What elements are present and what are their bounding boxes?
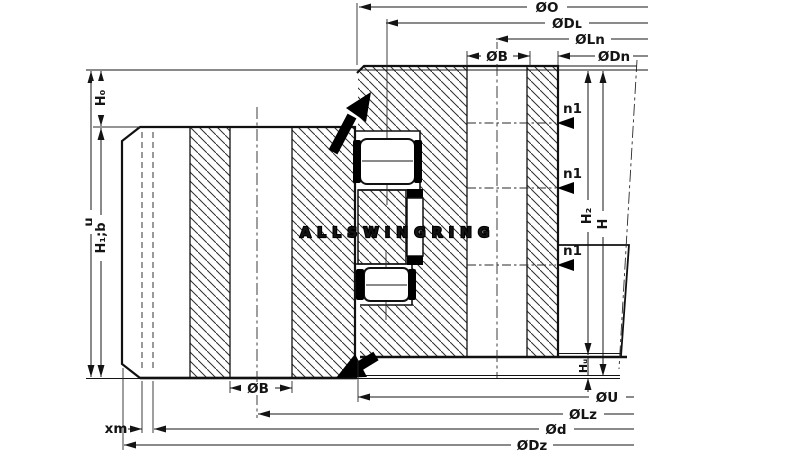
dim-label-H0: H₀ — [94, 89, 109, 106]
dim-label-H1b: H₁;b — [94, 222, 109, 253]
dim-label-H1b-group: H₁;b — [92, 215, 109, 261]
technical-drawing-page: ALLSWINGRING ØO ØDʟ ØLn ØB ØDn — [0, 0, 789, 459]
dim-label-H-group: H — [594, 211, 611, 237]
dim-label-H0-group: H₀ — [92, 81, 109, 115]
dim-label-U: ØU — [596, 390, 618, 406]
right-dimensions: H₂ H Hᵤ n1 n1 n1 — [557, 71, 611, 392]
dim-label-H2: H₂ — [580, 208, 595, 225]
n1-arrow-upper-icon — [557, 117, 574, 129]
n1-label-middle: n1 — [563, 166, 582, 182]
radial-roller-retainer-bottom — [407, 256, 423, 265]
dim-label-B-top: ØB — [486, 49, 508, 65]
dim-label-Hu: Hᵤ — [577, 359, 590, 373]
dim-label-H2-group: H₂ — [578, 200, 595, 232]
n1-arrow-lower-icon — [557, 259, 574, 271]
dim-label-H: H — [596, 219, 611, 230]
outer-ring-hatch-lower-mid — [412, 264, 467, 305]
top-dimensions: ØO ØDʟ ØLn ØB ØDn — [357, 0, 648, 66]
n1-label-upper: n1 — [563, 101, 582, 117]
inner-ring-hatch-band-2 — [292, 127, 355, 378]
lower-seal-right — [408, 269, 416, 300]
upper-seal-left — [353, 140, 361, 183]
gear-pitch-line — [619, 60, 637, 369]
n1-arrow-middle-icon — [557, 182, 574, 194]
n1-label-lower: n1 — [563, 243, 582, 259]
left-dimensions: u H₀ H₁;b — [80, 71, 140, 377]
watermark-text: ALLSWINGRING — [300, 225, 495, 241]
dim-label-Ln: ØLn — [575, 32, 605, 48]
dim-label-DL: ØDʟ — [552, 16, 582, 32]
dim-label-O: ØO — [536, 0, 559, 16]
radial-roller-retainer-top — [407, 189, 423, 198]
dim-label-Dn: ØDn — [598, 49, 630, 65]
outer-ring-hatch-bottom — [360, 305, 467, 357]
outer-ring-hatch-top — [358, 66, 467, 131]
bottom-dimensions: ØB ØU ØLz Ød ØDz xm — [105, 360, 634, 454]
upper-seal-right — [414, 140, 422, 183]
lower-seal-left — [356, 269, 364, 300]
dim-label-Lz: ØLz — [569, 407, 597, 423]
outer-ring-hatch-outer-band — [527, 66, 558, 357]
dim-label-Hu-group: Hᵤ — [577, 359, 590, 373]
dim-label-Dz: ØDz — [517, 438, 548, 454]
dim-label-xm: xm — [105, 421, 128, 437]
outer-ring-hatch-upper-mid — [420, 131, 467, 190]
inner-ring-hatch-band-1 — [190, 127, 230, 378]
dim-label-d: Ød — [545, 422, 566, 438]
bearing-section-drawing: ALLSWINGRING ØO ØDʟ ØLn ØB ØDn — [0, 0, 789, 459]
dim-label-B-bottom: ØB — [247, 381, 269, 397]
